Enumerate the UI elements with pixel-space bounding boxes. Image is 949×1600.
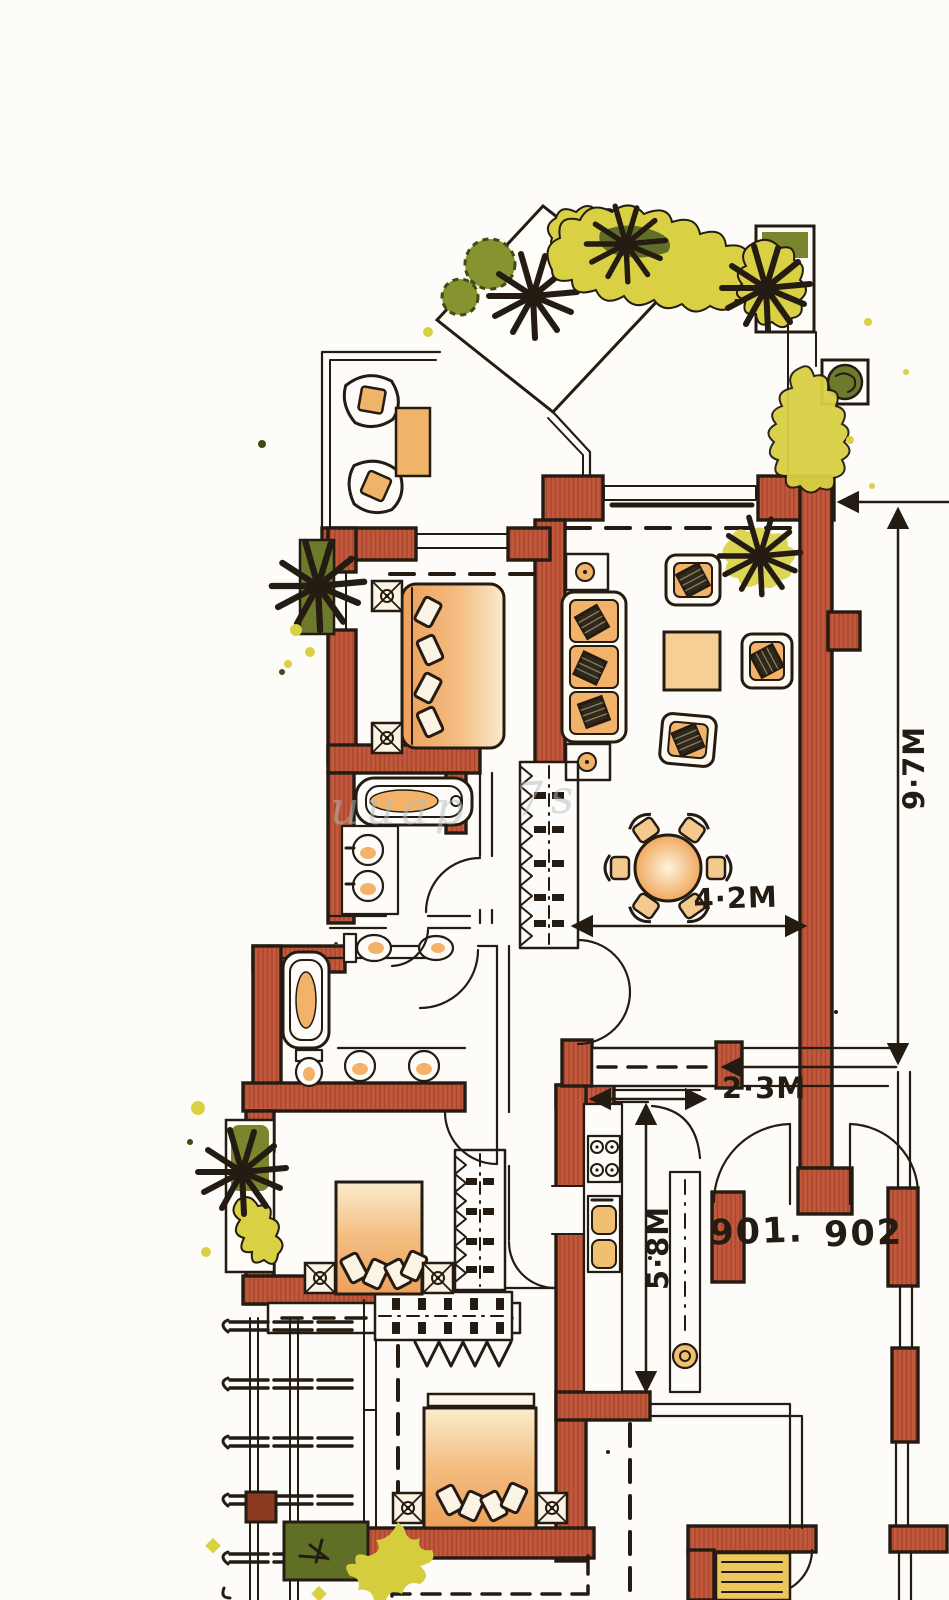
armchair	[666, 555, 720, 605]
bedroom2-bed	[305, 1182, 453, 1294]
bedroom3-bed	[393, 1394, 567, 1528]
terrace-table	[396, 408, 430, 476]
bedroom2-wardrobe	[455, 1150, 505, 1290]
living-room	[562, 554, 792, 926]
kitchen-sink	[588, 1196, 620, 1272]
terrace-lounge-chair	[342, 372, 402, 430]
unit-label-902: 902	[823, 1213, 903, 1256]
dim-walkway-width: 2·3M	[722, 1071, 806, 1105]
unit-label-901: 901.	[709, 1210, 805, 1253]
dining-table	[635, 835, 701, 901]
bathroom2	[283, 952, 465, 1086]
pergola-post	[246, 1492, 276, 1522]
dim-living-height: 9·7M	[897, 726, 931, 810]
dim-dining-width: 4·2M	[693, 880, 778, 917]
planter-right	[768, 320, 868, 493]
watermark-fragment: uuap	[330, 781, 470, 835]
toilet	[296, 1050, 322, 1086]
sofa	[562, 592, 626, 742]
planter-bedroom2	[187, 1101, 286, 1272]
stove	[588, 1136, 620, 1182]
coffee-table	[664, 632, 720, 690]
bedroom1-bed	[372, 581, 504, 753]
armchair	[742, 634, 792, 688]
floorplan-page: 901. 902 9·7M 4·2M 2·3M 5·8M uuap 7s	[0, 0, 949, 1600]
bedroom3-wardrobe	[375, 1292, 512, 1366]
armchair	[659, 713, 717, 768]
dim-kitchen-height: 5·8M	[641, 1206, 675, 1290]
bidet	[419, 936, 453, 960]
toilet	[344, 934, 391, 962]
watermark-fragment: 7s	[513, 769, 581, 827]
floorplan-drawing: 901. 902 9·7M 4·2M 2·3M 5·8M uuap 7s	[0, 0, 949, 1600]
